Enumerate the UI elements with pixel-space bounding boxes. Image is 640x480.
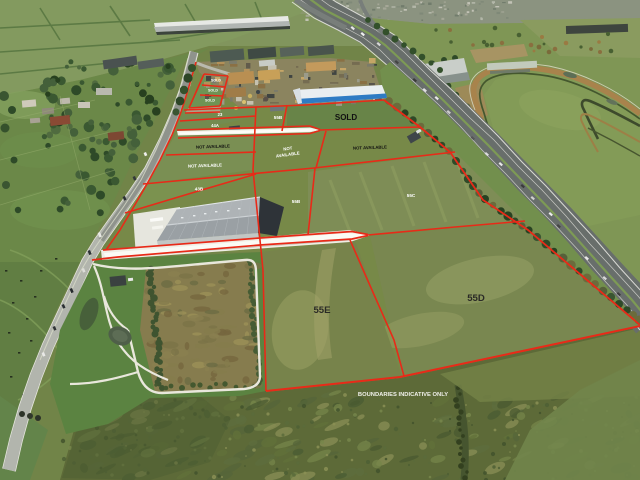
svg-text:SOLD: SOLD xyxy=(205,99,215,103)
svg-text:23: 23 xyxy=(218,112,223,117)
svg-text:43B: 43B xyxy=(195,187,204,192)
svg-text:55B: 55B xyxy=(292,199,301,204)
svg-text:BOUNDARIES INDICATIVE ONLY: BOUNDARIES INDICATIVE ONLY xyxy=(358,392,448,398)
svg-text:44A: 44A xyxy=(211,123,219,128)
svg-text:SOLD: SOLD xyxy=(208,89,218,93)
svg-text:55D: 55D xyxy=(467,293,485,304)
svg-text:55B: 55B xyxy=(274,115,283,120)
svg-text:55C: 55C xyxy=(407,193,416,198)
svg-text:55E: 55E xyxy=(313,305,331,316)
svg-text:SOLD: SOLD xyxy=(211,79,221,83)
svg-text:SOLD: SOLD xyxy=(335,113,357,122)
